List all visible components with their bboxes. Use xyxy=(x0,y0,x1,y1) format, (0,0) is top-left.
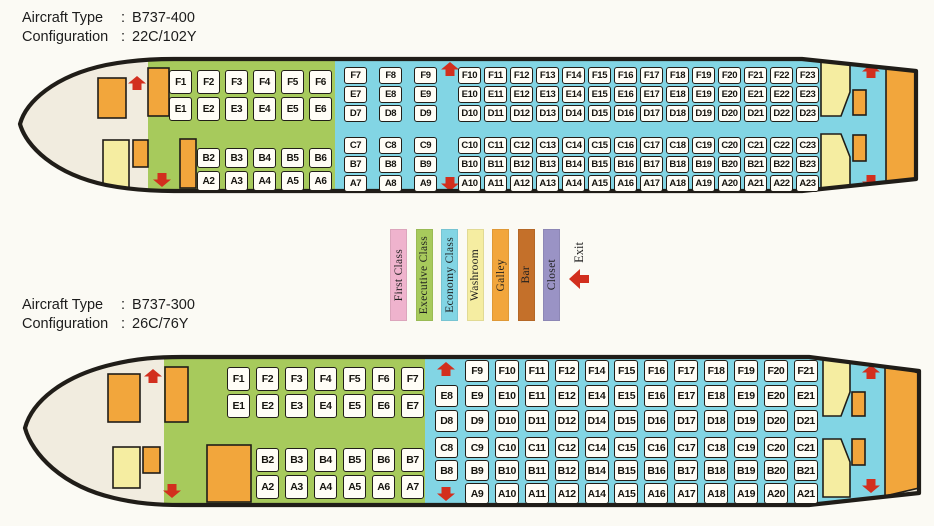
seat-b20: B20 xyxy=(718,156,741,173)
seat-d10: D10 xyxy=(495,410,519,432)
seat-e18: E18 xyxy=(666,86,689,103)
galley-block-rear-upper-small xyxy=(853,90,866,115)
separator: : xyxy=(121,9,125,28)
seat-a14: A14 xyxy=(562,175,585,192)
seat-a4: A4 xyxy=(314,475,337,499)
seat-e13: E13 xyxy=(536,86,559,103)
seat-column: B2A2 xyxy=(256,448,279,499)
seat-d19: D19 xyxy=(692,105,715,122)
seat-c20: C20 xyxy=(718,137,741,154)
seat-d18: D18 xyxy=(666,105,689,122)
seat-c9: C9 xyxy=(414,137,437,154)
seat-column: C14B14A14 xyxy=(585,437,609,504)
seat-a10: A10 xyxy=(458,175,481,192)
seat-column: F8E8D8 xyxy=(379,67,402,122)
seat-e17: E17 xyxy=(674,385,698,407)
seat-e11: E11 xyxy=(525,385,549,407)
seat-a17: A17 xyxy=(674,483,698,504)
galley-block-rear-upper-small xyxy=(852,392,865,416)
seat-b21: B21 xyxy=(744,156,767,173)
seat-c15: C15 xyxy=(614,437,638,458)
seat-column: C23B23A23 xyxy=(796,137,819,192)
seat-f10: F10 xyxy=(458,67,481,84)
seat-f18: F18 xyxy=(666,67,689,84)
galley-block-front-upper xyxy=(108,374,140,422)
seat-column: F20E20D20 xyxy=(718,67,741,122)
bar-block-front xyxy=(180,139,196,188)
seat-f5: F5 xyxy=(343,367,366,391)
seat-d8: D8 xyxy=(435,410,458,432)
aircraft-type-row: Aircraft Type : B737-300 xyxy=(22,296,195,315)
seat-column: F15E15D15 xyxy=(614,360,638,432)
seat-a15: A15 xyxy=(614,483,638,504)
seat-b4: B4 xyxy=(253,148,276,168)
seat-column: C16B16A16 xyxy=(614,137,637,192)
seat-column: F10E10D10 xyxy=(495,360,519,432)
seat-a6: A6 xyxy=(309,171,332,191)
configuration-value: 22C/102Y xyxy=(132,28,197,47)
seat-f23: F23 xyxy=(796,67,819,84)
seat-column: C17B17A17 xyxy=(674,437,698,504)
seat-a18: A18 xyxy=(704,483,728,504)
seat-f10: F10 xyxy=(495,360,519,382)
seat-e15: E15 xyxy=(614,385,638,407)
seat-f1: F1 xyxy=(227,367,250,391)
seat-c15: C15 xyxy=(588,137,611,154)
seat-b7: B7 xyxy=(401,448,424,472)
seat-column: C18B18A18 xyxy=(704,437,728,504)
economy-main-lower-seats: C9B9A9C10B10A10C11B11A11C12B12A12C14B14A… xyxy=(465,437,818,504)
legend-label: Economy Class xyxy=(444,237,456,313)
seat-e19: E19 xyxy=(734,385,758,407)
seat-column: F18E18D18 xyxy=(666,67,689,122)
seat-column: F16E16D16 xyxy=(614,67,637,122)
seat-a12: A12 xyxy=(510,175,533,192)
legend-item-closet: Closet xyxy=(543,229,560,321)
seat-e14: E14 xyxy=(562,86,585,103)
seat-c11: C11 xyxy=(525,437,549,458)
legend-exit: Exit xyxy=(569,229,589,292)
separator: : xyxy=(121,28,125,47)
seat-d10: D10 xyxy=(458,105,481,122)
seat-f19: F19 xyxy=(692,67,715,84)
legend-label: First Class xyxy=(393,249,405,301)
executive-lower-seats: B2A2B3A3B4A4B5A5B6A6B7A7 xyxy=(256,448,424,499)
seat-f16: F16 xyxy=(644,360,668,382)
seat-c18: C18 xyxy=(704,437,728,458)
seat-column: F7E7 xyxy=(401,367,424,418)
seat-f20: F20 xyxy=(764,360,788,382)
legend-item-galley: Galley xyxy=(492,229,509,321)
seat-b8: B8 xyxy=(435,460,458,481)
aircraft-type-value: B737-300 xyxy=(132,296,195,315)
seat-a15: A15 xyxy=(588,175,611,192)
seat-f14: F14 xyxy=(562,67,585,84)
aircraft-info-b737-300: Aircraft Type : B737-300 Configuration :… xyxy=(22,296,195,334)
aircraft-type-label: Aircraft Type xyxy=(22,296,121,315)
seat-c17: C17 xyxy=(640,137,663,154)
seat-column: C21B21A21 xyxy=(794,437,818,504)
seat-column: F11E11D11 xyxy=(525,360,549,432)
seat-b9: B9 xyxy=(465,460,489,481)
seat-a16: A16 xyxy=(644,483,668,504)
seat-d11: D11 xyxy=(484,105,507,122)
seat-column: F15E15D15 xyxy=(588,67,611,122)
seat-b12: B12 xyxy=(510,156,533,173)
seat-e12: E12 xyxy=(510,86,533,103)
seat-c20: C20 xyxy=(764,437,788,458)
seat-f17: F17 xyxy=(640,67,663,84)
seat-d15: D15 xyxy=(588,105,611,122)
seat-column: B3A3 xyxy=(285,448,308,499)
exit-label: Exit xyxy=(572,242,587,263)
seat-column: F5E5 xyxy=(343,367,366,418)
seat-d20: D20 xyxy=(764,410,788,432)
seat-d14: D14 xyxy=(562,105,585,122)
seat-b2: B2 xyxy=(197,148,220,168)
seat-a6: A6 xyxy=(372,475,395,499)
seat-b6: B6 xyxy=(372,448,395,472)
seat-column: F1E1 xyxy=(227,367,250,418)
seat-f19: F19 xyxy=(734,360,758,382)
seat-a3: A3 xyxy=(225,171,248,191)
seat-f21: F21 xyxy=(744,67,767,84)
seat-e17: E17 xyxy=(640,86,663,103)
seat-c12: C12 xyxy=(555,437,579,458)
seat-column: C13B13A13 xyxy=(536,137,559,192)
seat-f12: F12 xyxy=(510,67,533,84)
seat-a22: A22 xyxy=(770,175,793,192)
seat-column: F23E23D23 xyxy=(796,67,819,122)
seat-column: C18B18A18 xyxy=(666,137,689,192)
seat-e23: E23 xyxy=(796,86,819,103)
seat-a21: A21 xyxy=(744,175,767,192)
seat-e16: E16 xyxy=(644,385,668,407)
seat-b14: B14 xyxy=(585,460,609,481)
seat-c14: C14 xyxy=(585,437,609,458)
seat-column: F6E6 xyxy=(309,70,332,121)
seat-b5: B5 xyxy=(281,148,304,168)
seat-column: C12B12A12 xyxy=(510,137,533,192)
galley-block-front-door xyxy=(165,367,188,422)
economy-main-upper-seats: F10E10D10F11E11D11F12E12D12F13E13D13F14E… xyxy=(458,67,819,122)
legend-item-first-class: First Class xyxy=(390,229,407,321)
seat-column: B6A6 xyxy=(372,448,395,499)
aircraft-type-row: Aircraft Type : B737-400 xyxy=(22,9,197,28)
seat-c12: C12 xyxy=(510,137,533,154)
seat-column: F9E9D9 xyxy=(465,360,489,432)
seat-e14: E14 xyxy=(585,385,609,407)
seat-b15: B15 xyxy=(614,460,638,481)
seat-a19: A19 xyxy=(692,175,715,192)
seat-e4: E4 xyxy=(253,97,276,121)
seat-d23: D23 xyxy=(796,105,819,122)
seat-b8: B8 xyxy=(379,156,402,173)
seat-a4: A4 xyxy=(253,171,276,191)
seat-d12: D12 xyxy=(510,105,533,122)
seat-column: F2E2 xyxy=(256,367,279,418)
seat-e16: E16 xyxy=(614,86,637,103)
seat-column: F21E21D21 xyxy=(794,360,818,432)
seat-e7: E7 xyxy=(401,394,424,418)
configuration-label: Configuration xyxy=(22,28,121,47)
seat-f9: F9 xyxy=(465,360,489,382)
seat-c22: C22 xyxy=(770,137,793,154)
seat-f12: F12 xyxy=(555,360,579,382)
seat-a18: A18 xyxy=(666,175,689,192)
seat-c19: C19 xyxy=(692,137,715,154)
seat-column: C11B11A11 xyxy=(525,437,549,504)
seat-column: C14B14A14 xyxy=(562,137,585,192)
seat-a21: A21 xyxy=(794,483,818,504)
seat-e21: E21 xyxy=(744,86,767,103)
galley-block-front-small xyxy=(143,447,160,473)
galley-block-front-small xyxy=(133,140,148,167)
seat-column: C17B17A17 xyxy=(640,137,663,192)
seat-a2: A2 xyxy=(256,475,279,499)
seat-f22: F22 xyxy=(770,67,793,84)
seat-e20: E20 xyxy=(718,86,741,103)
seat-f1: F1 xyxy=(169,70,192,94)
seat-c7: C7 xyxy=(344,137,367,154)
seat-f3: F3 xyxy=(285,367,308,391)
seat-f11: F11 xyxy=(484,67,507,84)
seat-f7: F7 xyxy=(344,67,367,84)
seat-f21: F21 xyxy=(794,360,818,382)
legend-items: First ClassExecutive ClassEconomy ClassW… xyxy=(390,229,560,321)
seat-e9: E9 xyxy=(414,86,437,103)
seat-column: F1E1 xyxy=(169,70,192,121)
seat-e6: E6 xyxy=(372,394,395,418)
seat-column: F7E7D7 xyxy=(344,67,367,122)
seat-column: C10B10A10 xyxy=(458,137,481,192)
seat-e3: E3 xyxy=(285,394,308,418)
seat-e15: E15 xyxy=(588,86,611,103)
seat-e10: E10 xyxy=(495,385,519,407)
seatmap-b737-400: F1E1F2E2F3E3F4E4F5E5F6E6 B2A2B3A3B4A4B5A… xyxy=(14,56,934,196)
seat-d21: D21 xyxy=(744,105,767,122)
seat-column: F21E21D21 xyxy=(744,67,767,122)
seat-f15: F15 xyxy=(588,67,611,84)
seat-c14: C14 xyxy=(562,137,585,154)
seat-a11: A11 xyxy=(525,483,549,504)
seat-e21: E21 xyxy=(794,385,818,407)
seat-d9: D9 xyxy=(414,105,437,122)
seat-e5: E5 xyxy=(343,394,366,418)
seat-c9: C9 xyxy=(465,437,489,458)
seat-d22: D22 xyxy=(770,105,793,122)
seat-b3: B3 xyxy=(225,148,248,168)
seat-e8: E8 xyxy=(435,385,458,407)
seat-e20: E20 xyxy=(764,385,788,407)
separator: : xyxy=(121,315,125,334)
seat-a12: A12 xyxy=(555,483,579,504)
seat-b22: B22 xyxy=(770,156,793,173)
seat-column: B3A3 xyxy=(225,148,248,191)
bar-block-front xyxy=(207,445,251,502)
galley-block-rear-lower-small xyxy=(853,135,866,161)
seat-column: F18E18D18 xyxy=(704,360,728,432)
seat-b19: B19 xyxy=(734,460,758,481)
seat-column: C15B15A15 xyxy=(588,137,611,192)
seat-column: C8B8 xyxy=(435,437,458,504)
seat-f13: F13 xyxy=(536,67,559,84)
seat-b15: B15 xyxy=(588,156,611,173)
seat-c8: C8 xyxy=(379,137,402,154)
seat-f2: F2 xyxy=(256,367,279,391)
seat-a16: A16 xyxy=(614,175,637,192)
seat-b17: B17 xyxy=(674,460,698,481)
seat-column: C19B19A19 xyxy=(734,437,758,504)
seat-a10: A10 xyxy=(495,483,519,504)
seat-column: F17E17D17 xyxy=(674,360,698,432)
seat-f4: F4 xyxy=(314,367,337,391)
executive-upper-seats: F1E1F2E2F3E3F4E4F5E5F6E6 xyxy=(169,70,332,121)
legend-item-economy-class: Economy Class xyxy=(441,229,458,321)
seat-a7: A7 xyxy=(344,175,367,192)
seat-f4: F4 xyxy=(253,70,276,94)
seat-d21: D21 xyxy=(794,410,818,432)
configuration-row: Configuration : 22C/102Y xyxy=(22,28,197,47)
configuration-value: 26C/76Y xyxy=(132,315,188,334)
seat-column: C20B20A20 xyxy=(718,137,741,192)
seat-column: F14E14D14 xyxy=(585,360,609,432)
seat-column: F12E12D12 xyxy=(555,360,579,432)
seat-f7: F7 xyxy=(401,367,424,391)
configuration-row: Configuration : 26C/76Y xyxy=(22,315,195,334)
seat-column: F16E16D16 xyxy=(644,360,668,432)
seat-a11: A11 xyxy=(484,175,507,192)
seat-d16: D16 xyxy=(644,410,668,432)
seat-c8: C8 xyxy=(435,437,458,458)
seat-column: F17E17D17 xyxy=(640,67,663,122)
seat-column: C11B11A11 xyxy=(484,137,507,192)
seat-a17: A17 xyxy=(640,175,663,192)
seat-e5: E5 xyxy=(281,97,304,121)
seat-column: F9E9D9 xyxy=(414,67,437,122)
seat-b6: B6 xyxy=(309,148,332,168)
seat-column: C9B9A9 xyxy=(414,137,437,192)
seat-column: B7A7 xyxy=(401,448,424,499)
seat-column: F2E2 xyxy=(197,70,220,121)
seat-column: C15B15A15 xyxy=(614,437,638,504)
seat-b10: B10 xyxy=(495,460,519,481)
seat-b4: B4 xyxy=(314,448,337,472)
seat-column: B5A5 xyxy=(343,448,366,499)
seat-e2: E2 xyxy=(256,394,279,418)
seat-c11: C11 xyxy=(484,137,507,154)
seat-f17: F17 xyxy=(674,360,698,382)
seat-c19: C19 xyxy=(734,437,758,458)
washroom-block-front xyxy=(113,447,140,488)
economy-forward-upper-seats: F7E7D7F8E8D8F9E9D9 xyxy=(344,67,437,122)
seat-column: B6A6 xyxy=(309,148,332,191)
seat-column: B2A2 xyxy=(197,148,220,191)
seat-f6: F6 xyxy=(309,70,332,94)
seat-d8: D8 xyxy=(379,105,402,122)
executive-upper-seats: F1E1F2E2F3E3F4E4F5E5F6E6F7E7 xyxy=(227,367,424,418)
seat-column: B4A4 xyxy=(253,148,276,191)
seat-c13: C13 xyxy=(536,137,559,154)
seat-column: C16B16A16 xyxy=(644,437,668,504)
seat-column: B4A4 xyxy=(314,448,337,499)
aircraft-type-label: Aircraft Type xyxy=(22,9,121,28)
seat-column: C19B19A19 xyxy=(692,137,715,192)
seat-b5: B5 xyxy=(343,448,366,472)
seatmap-page: Aircraft Type : B737-400 Configuration :… xyxy=(0,0,934,526)
seat-column: C10B10A10 xyxy=(495,437,519,504)
seat-column: F22E22D22 xyxy=(770,67,793,122)
seat-d18: D18 xyxy=(704,410,728,432)
seat-b17: B17 xyxy=(640,156,663,173)
seat-c18: C18 xyxy=(666,137,689,154)
seat-a9: A9 xyxy=(465,483,489,504)
economy-forward-lower-seats: C7B7A7C8B8A8C9B9A9 xyxy=(344,137,437,192)
economy-main-upper-seats: F9E9D9F10E10D10F11E11D11F12E12D12F14E14D… xyxy=(465,360,818,432)
seat-d12: D12 xyxy=(555,410,579,432)
seat-d9: D9 xyxy=(465,410,489,432)
seat-f3: F3 xyxy=(225,70,248,94)
seat-a8: A8 xyxy=(379,175,402,192)
legend-item-executive-class: Executive Class xyxy=(416,229,433,321)
seat-column: C20B20A20 xyxy=(764,437,788,504)
seat-e6: E6 xyxy=(309,97,332,121)
seat-a20: A20 xyxy=(764,483,788,504)
seat-b13: B13 xyxy=(536,156,559,173)
legend: First ClassExecutive ClassEconomy ClassW… xyxy=(390,229,589,321)
seat-column: F6E6 xyxy=(372,367,395,418)
seat-b11: B11 xyxy=(525,460,549,481)
seat-column: F3E3 xyxy=(285,367,308,418)
seat-a14: A14 xyxy=(585,483,609,504)
seat-e2: E2 xyxy=(197,97,220,121)
seat-f20: F20 xyxy=(718,67,741,84)
seat-b16: B16 xyxy=(614,156,637,173)
seat-e1: E1 xyxy=(169,97,192,121)
seat-f14: F14 xyxy=(585,360,609,382)
legend-label: Galley xyxy=(495,259,507,291)
seat-e12: E12 xyxy=(555,385,579,407)
seat-e8: E8 xyxy=(379,86,402,103)
seat-d17: D17 xyxy=(640,105,663,122)
seat-d11: D11 xyxy=(525,410,549,432)
seat-d20: D20 xyxy=(718,105,741,122)
seat-e3: E3 xyxy=(225,97,248,121)
seat-b16: B16 xyxy=(644,460,668,481)
seat-b3: B3 xyxy=(285,448,308,472)
seat-b2: B2 xyxy=(256,448,279,472)
galley-block-front-door xyxy=(148,68,169,116)
separator: : xyxy=(121,296,125,315)
seat-column: F12E12D12 xyxy=(510,67,533,122)
seat-e7: E7 xyxy=(344,86,367,103)
economy-main-lower-seats: C10B10A10C11B11A11C12B12A12C13B13A13C14B… xyxy=(458,137,819,192)
seat-e10: E10 xyxy=(458,86,481,103)
seat-c16: C16 xyxy=(644,437,668,458)
seat-column: C7B7A7 xyxy=(344,137,367,192)
seat-a2: A2 xyxy=(197,171,220,191)
seat-b9: B9 xyxy=(414,156,437,173)
aircraft-info-b737-400: Aircraft Type : B737-400 Configuration :… xyxy=(22,9,197,47)
seat-a19: A19 xyxy=(734,483,758,504)
seat-a9: A9 xyxy=(414,175,437,192)
seat-column: C8B8A8 xyxy=(379,137,402,192)
seat-e4: E4 xyxy=(314,394,337,418)
seat-f5: F5 xyxy=(281,70,304,94)
seat-column: F5E5 xyxy=(281,70,304,121)
washroom-block-front xyxy=(103,140,129,188)
seat-b20: B20 xyxy=(764,460,788,481)
